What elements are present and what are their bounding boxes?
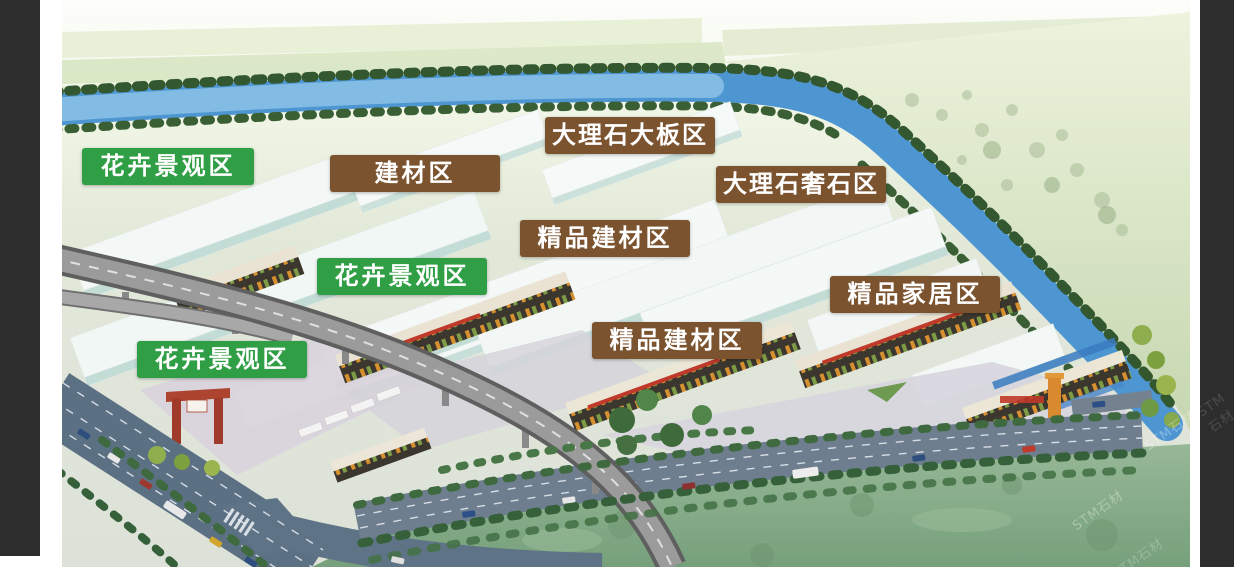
zone-label-flower-landscape-1: 花卉景观区 <box>82 148 254 185</box>
zone-label-flower-landscape-2: 花卉景观区 <box>317 258 487 295</box>
zone-label-flower-landscape-3: 花卉景观区 <box>137 341 307 378</box>
zone-label-building-materials: 建材区 <box>330 155 500 192</box>
right-dark-panel <box>1200 0 1234 567</box>
site-rendering <box>62 0 1190 567</box>
zone-label-boutique-building-materials-1: 精品建材区 <box>520 220 690 257</box>
zone-label-boutique-building-materials-2: 精品建材区 <box>592 322 762 359</box>
zone-label-marble-slab: 大理石大板区 <box>545 117 715 154</box>
aerial-site-plan: 花卉景观区 建材区 大理石大板区 大理石奢石区 精品建材区 花卉景观区 精品家居… <box>0 0 1234 567</box>
zone-label-boutique-home-furnishing: 精品家居区 <box>830 276 1000 313</box>
service-road <box>1072 398 1152 408</box>
site-rendering-graphic <box>62 0 1190 567</box>
left-dark-panel <box>0 0 40 556</box>
zone-label-marble-luxury-stone: 大理石奢石区 <box>716 166 886 203</box>
